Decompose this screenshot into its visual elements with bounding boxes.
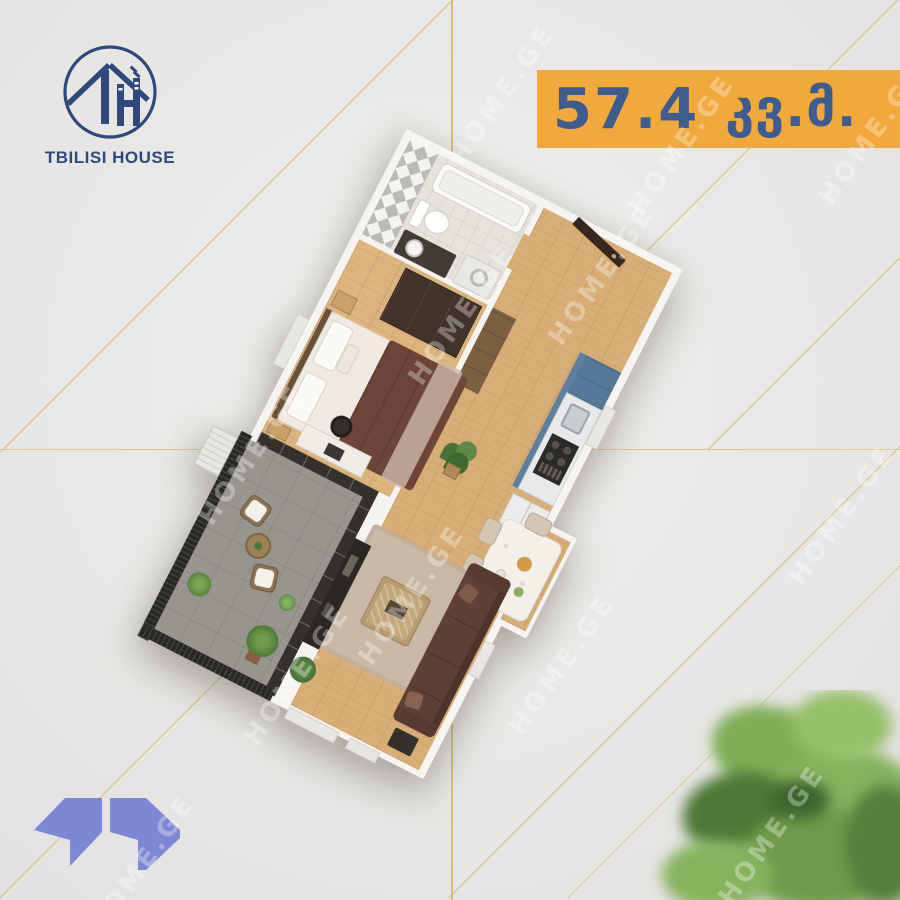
developer-logo-mark	[28, 790, 188, 890]
burner-icon	[556, 457, 567, 468]
area-value: 57.4	[553, 77, 699, 142]
food-plate	[514, 554, 534, 574]
brand-logo: TBILISI HOUSE	[30, 42, 190, 168]
leaf-cluster	[792, 690, 892, 760]
gold-line-diagonal-3	[708, 255, 900, 450]
sofa-cushion-seam	[427, 651, 460, 668]
leaf-cluster	[770, 780, 830, 820]
washer-door	[467, 266, 491, 290]
media-item	[321, 602, 334, 618]
table-plant	[253, 540, 264, 551]
burner-icon	[544, 451, 555, 462]
chair-cushion	[253, 567, 275, 589]
logo-mark-icon	[28, 790, 188, 890]
mosaic-tile-wall	[362, 140, 439, 249]
sofa-cushion-seam	[446, 614, 479, 631]
tbilisi-house-logo-icon	[30, 42, 190, 142]
bathtub-basin	[437, 168, 525, 228]
kitchen-sink	[560, 402, 591, 435]
throw-pillow	[404, 690, 424, 710]
area-badge: 57.4 კვ.მ.	[537, 70, 900, 148]
food-plate	[512, 585, 525, 598]
door-handle-icon	[611, 253, 617, 259]
burner-icon	[562, 445, 573, 456]
area-unit: კვ.მ.	[725, 79, 857, 139]
marketing-image: TBILISI HOUSE 57.4 კვ.მ. HOME.GE HOME.GE…	[0, 0, 900, 900]
brand-name: TBILISI HOUSE	[30, 148, 190, 168]
burner-icon	[550, 439, 561, 450]
throw-pillow	[457, 582, 480, 605]
foliage-decoration	[620, 690, 900, 900]
chair-cushion	[243, 498, 268, 523]
sink-basin	[402, 236, 426, 260]
laptop	[323, 443, 344, 462]
